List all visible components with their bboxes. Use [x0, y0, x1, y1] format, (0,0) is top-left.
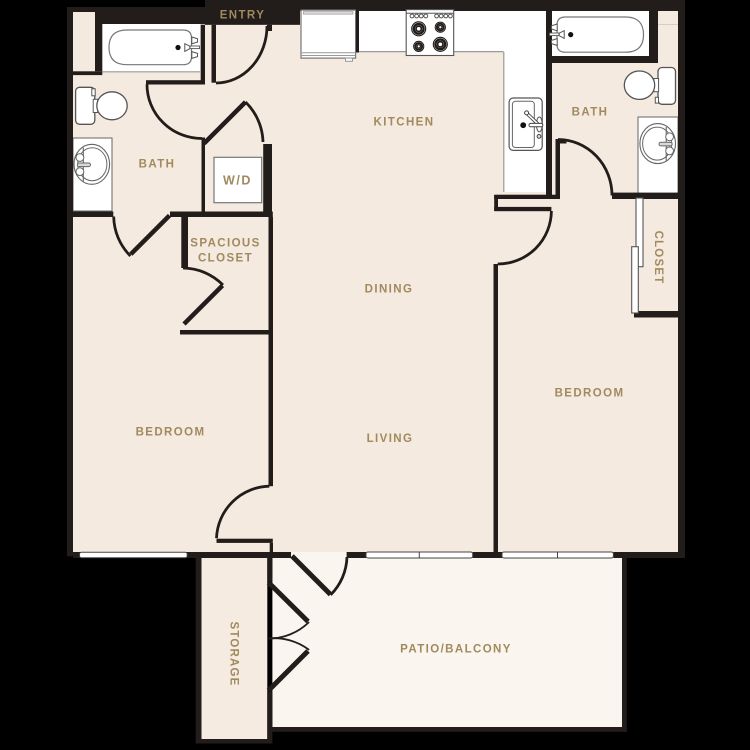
svg-text:ENTRY: ENTRY [220, 9, 266, 21]
svg-text:STORAGE: STORAGE [228, 621, 240, 686]
svg-text:BEDROOM: BEDROOM [555, 388, 625, 400]
svg-text:CLOSET: CLOSET [652, 231, 664, 285]
svg-text:LIVING: LIVING [367, 433, 414, 445]
svg-text:W/D: W/D [223, 173, 252, 187]
svg-text:BATH: BATH [139, 159, 176, 171]
svg-text:BEDROOM: BEDROOM [136, 426, 206, 438]
svg-text:DINING: DINING [365, 284, 414, 296]
svg-text:KITCHEN: KITCHEN [374, 116, 435, 128]
svg-text:PATIO/BALCONY: PATIO/BALCONY [400, 644, 512, 656]
svg-text:BATH: BATH [572, 107, 609, 119]
svg-text:SPACIOUS: SPACIOUS [190, 237, 260, 249]
svg-text:CLOSET: CLOSET [198, 252, 253, 264]
